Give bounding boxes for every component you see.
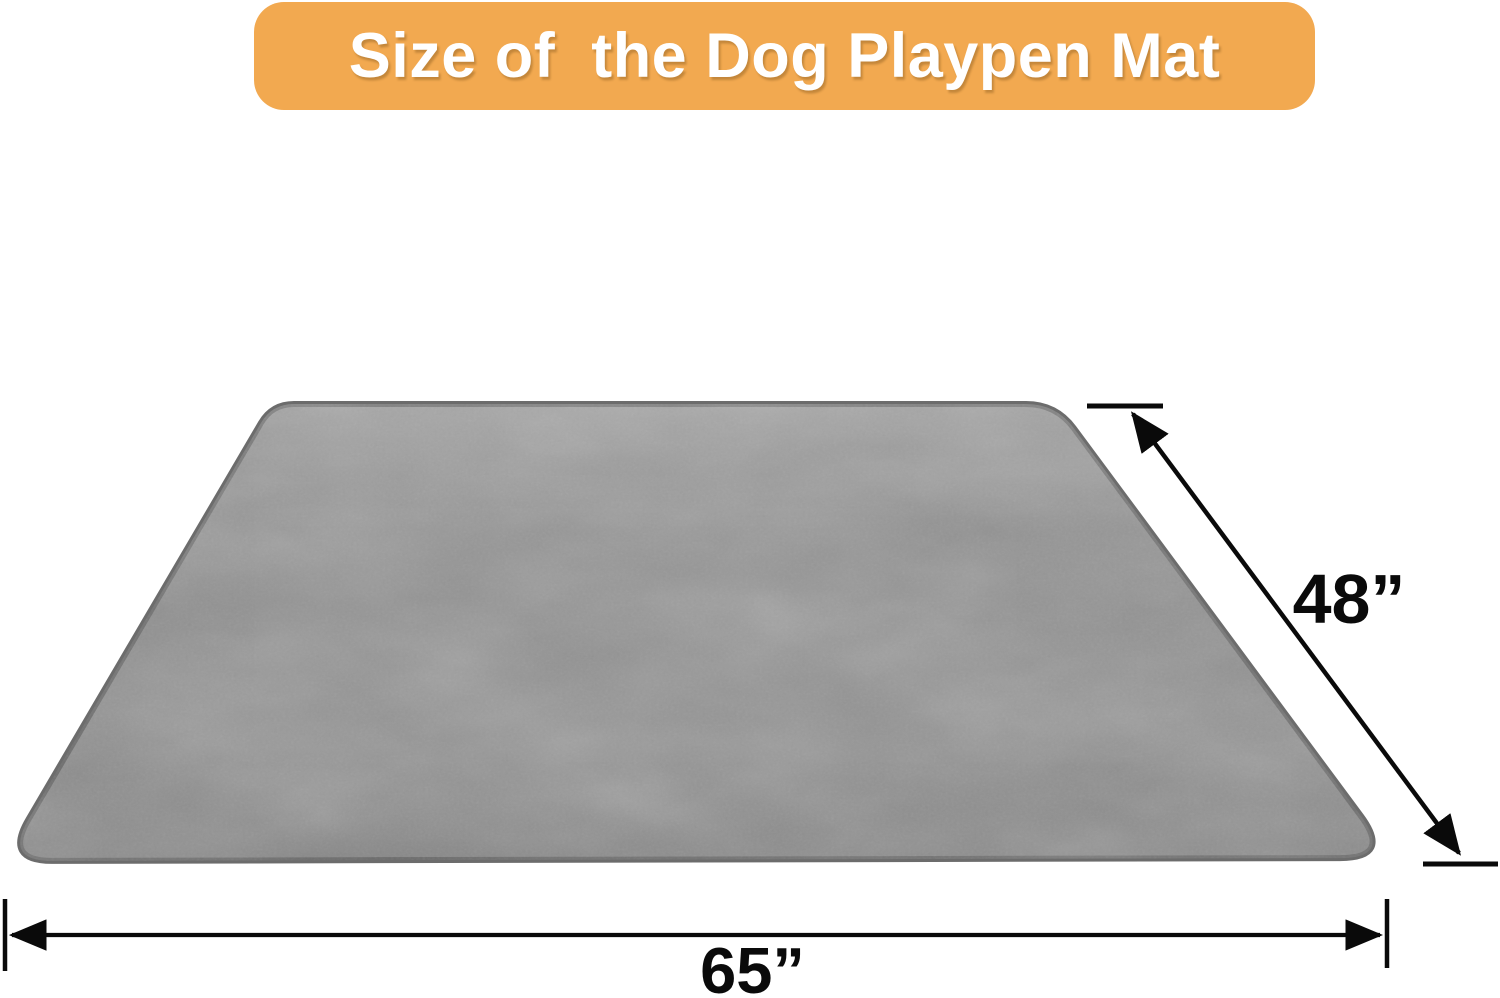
product-size-image: Size of the Dog Playpen Mat — [0, 0, 1500, 998]
width-dimension-label: 65” — [650, 938, 855, 998]
mat-illustration — [0, 0, 1500, 998]
mat-sheen — [0, 385, 1420, 880]
mat-shape — [0, 385, 1420, 880]
depth-dimension-label: 48” — [1249, 564, 1449, 634]
